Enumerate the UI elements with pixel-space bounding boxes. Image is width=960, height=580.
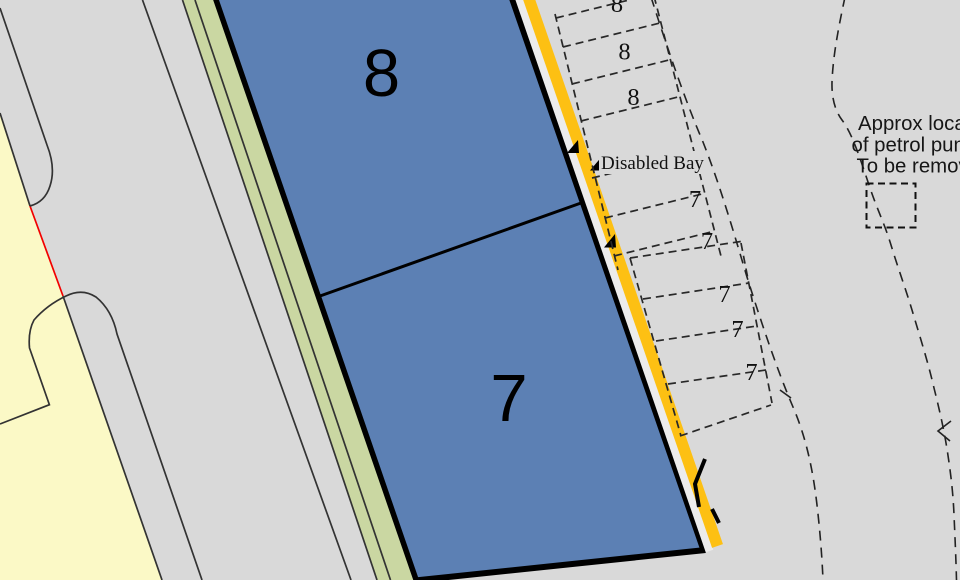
svg-text:7: 7 — [745, 359, 757, 386]
svg-text:7: 7 — [689, 186, 701, 213]
svg-text:of petrol pumps: of petrol pumps — [852, 135, 960, 157]
svg-text:8: 8 — [618, 39, 630, 66]
svg-text:7: 7 — [490, 361, 527, 436]
svg-text:7: 7 — [701, 228, 713, 255]
svg-text:To be removed: To be removed — [857, 156, 960, 178]
svg-text:8: 8 — [363, 36, 400, 111]
svg-text:8: 8 — [611, 0, 623, 18]
svg-text:Disabled Bay: Disabled Bay — [601, 153, 704, 174]
svg-text:7: 7 — [718, 281, 730, 308]
svg-text:8: 8 — [627, 84, 639, 111]
svg-text:Approx location: Approx location — [858, 113, 960, 135]
svg-text:7: 7 — [731, 316, 743, 343]
